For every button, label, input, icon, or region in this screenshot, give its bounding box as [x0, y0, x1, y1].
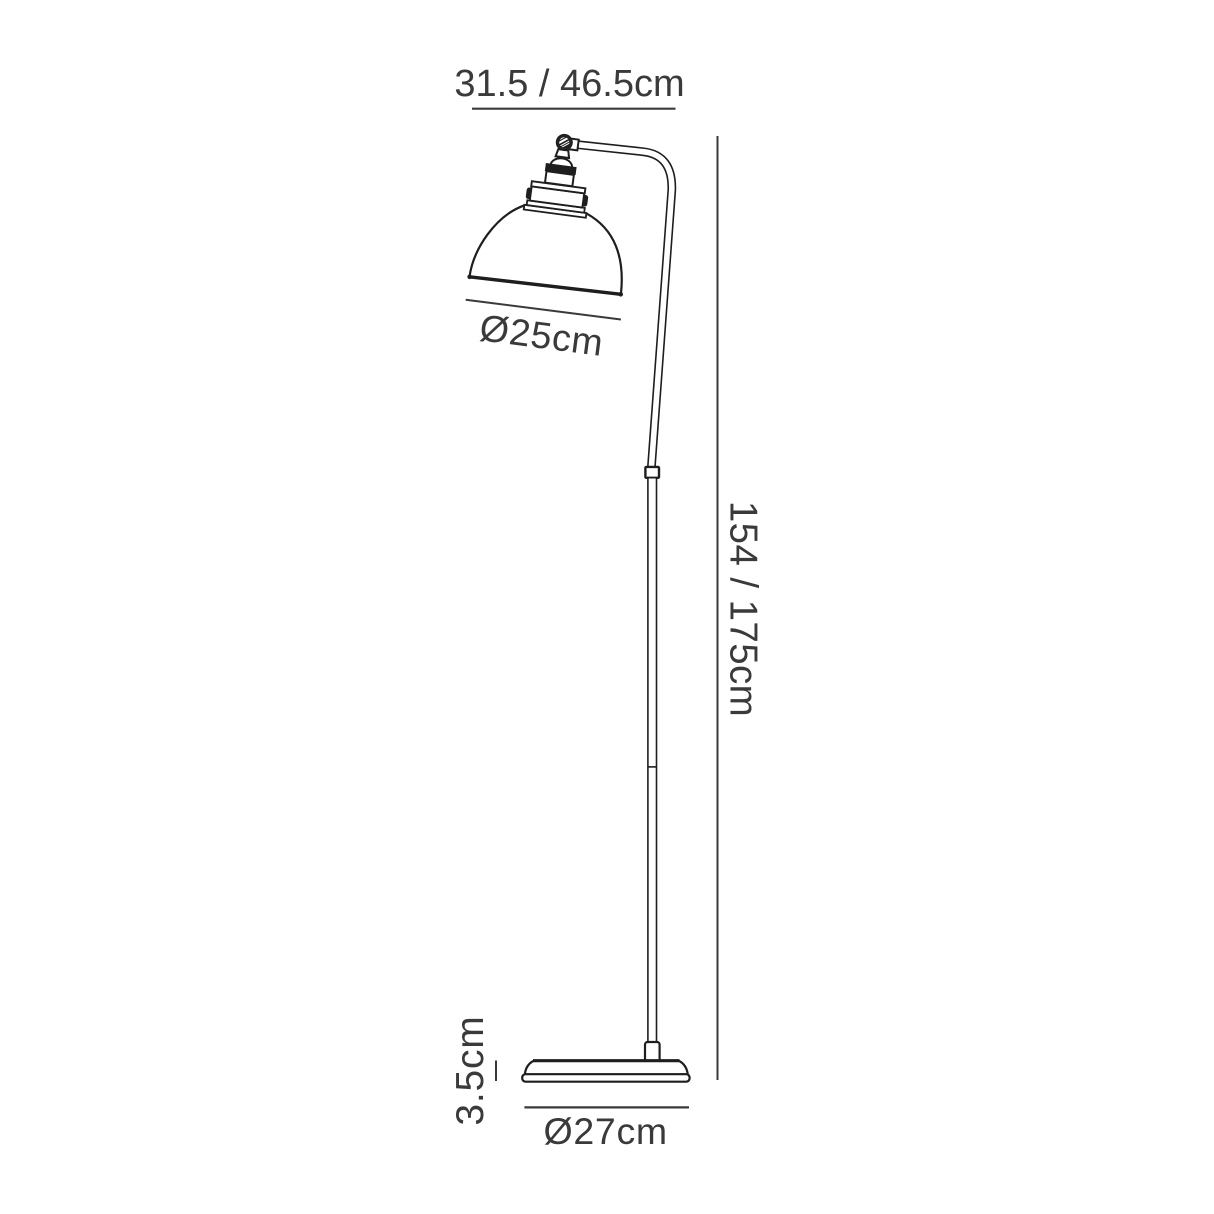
svg-text:Ø27cm: Ø27cm: [544, 1110, 668, 1152]
svg-text:3.5cm: 3.5cm: [449, 1015, 492, 1125]
svg-text:154 / 175cm: 154 / 175cm: [722, 501, 765, 717]
svg-text:31.5 / 46.5cm: 31.5 / 46.5cm: [454, 63, 684, 105]
